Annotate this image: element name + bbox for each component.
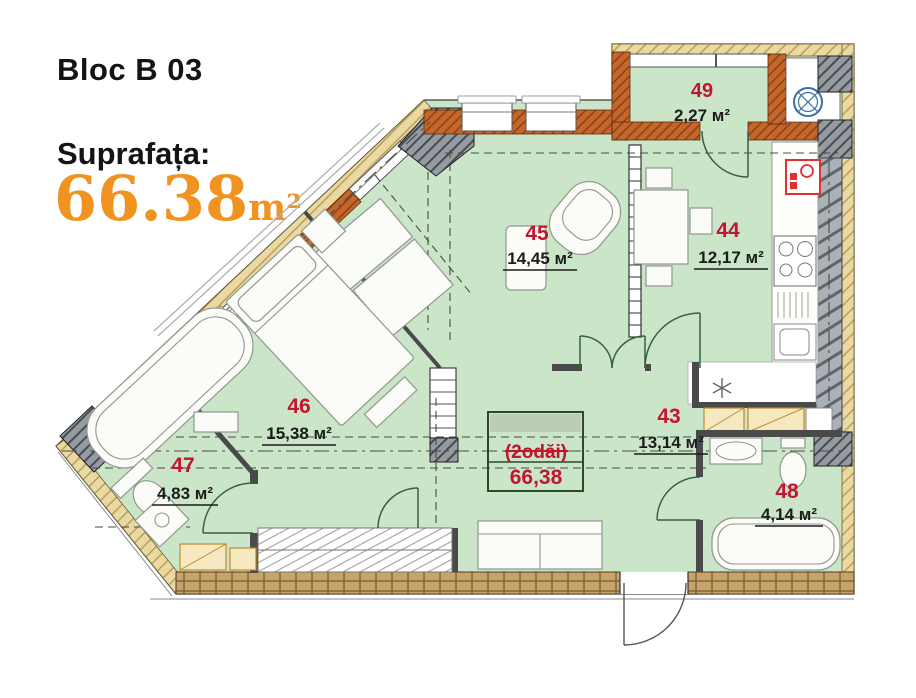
room-48-number: 48 <box>775 480 799 503</box>
stove-icon <box>774 236 816 286</box>
sink-48 <box>710 438 762 464</box>
stamp-type-label: (2odăi) <box>505 442 567 463</box>
room-43-number: 43 <box>657 405 680 428</box>
stamp-total-area: 66,38 <box>510 466 563 489</box>
room-48-area: 4,14 м² <box>761 505 817 524</box>
kitchen-sink <box>774 324 816 360</box>
nook-wall-bottom <box>692 402 816 408</box>
wardrobe-corridor <box>258 528 452 572</box>
sofa <box>478 521 602 569</box>
wall-48-left-b <box>696 520 703 572</box>
column-topright-1 <box>818 56 852 92</box>
wall-47-upper <box>250 470 258 484</box>
bench-47 <box>194 412 238 432</box>
electric-panel-icon <box>786 160 820 194</box>
kitchen-nook <box>688 362 832 432</box>
wall-48-top <box>696 430 842 437</box>
outer-wall-bottom-a <box>176 572 620 594</box>
wall-stub-45-mid <box>645 364 651 371</box>
floor-plan: (2odăi) 66,38 49 2,27 м² 45 14,45 м² 44 … <box>0 0 916 698</box>
floor-plan-page: Bloc B 03 Suprafața: 66.38m² <box>0 0 916 698</box>
room-47-area: 4,83 м² <box>157 484 213 503</box>
shaft-box-3 <box>806 408 832 432</box>
column-right-bottom <box>814 432 852 466</box>
kitchen-counter <box>772 142 820 364</box>
room-45-area: 14,45 м² <box>507 249 573 268</box>
room-44-area: 12,17 м² <box>698 248 764 267</box>
room-46-area: 15,38 м² <box>266 424 332 443</box>
window-top-2 <box>526 103 576 131</box>
room-49-area: 2,27 м² <box>674 106 730 125</box>
entrance-door <box>620 572 688 645</box>
glazed-strip-46 <box>430 368 456 438</box>
window-top-1 <box>462 103 512 131</box>
window-49 <box>630 54 770 67</box>
room-49-number: 49 <box>691 80 713 102</box>
room-43-area: 13,14 м² <box>638 433 704 452</box>
column-corridor <box>430 438 458 462</box>
nook-wall-left <box>692 362 699 406</box>
room-45-number: 45 <box>525 222 549 245</box>
room-46-number: 46 <box>287 395 310 418</box>
wall-stub-45-left <box>552 364 582 371</box>
column-topright-2 <box>818 120 852 158</box>
room-47-number: 47 <box>171 454 194 477</box>
shaft-boxes-bottom-left <box>180 544 256 570</box>
outer-wall-bottom-b <box>688 572 854 594</box>
room-44-number: 44 <box>716 219 740 242</box>
wall-wardrobe-end <box>452 528 458 572</box>
